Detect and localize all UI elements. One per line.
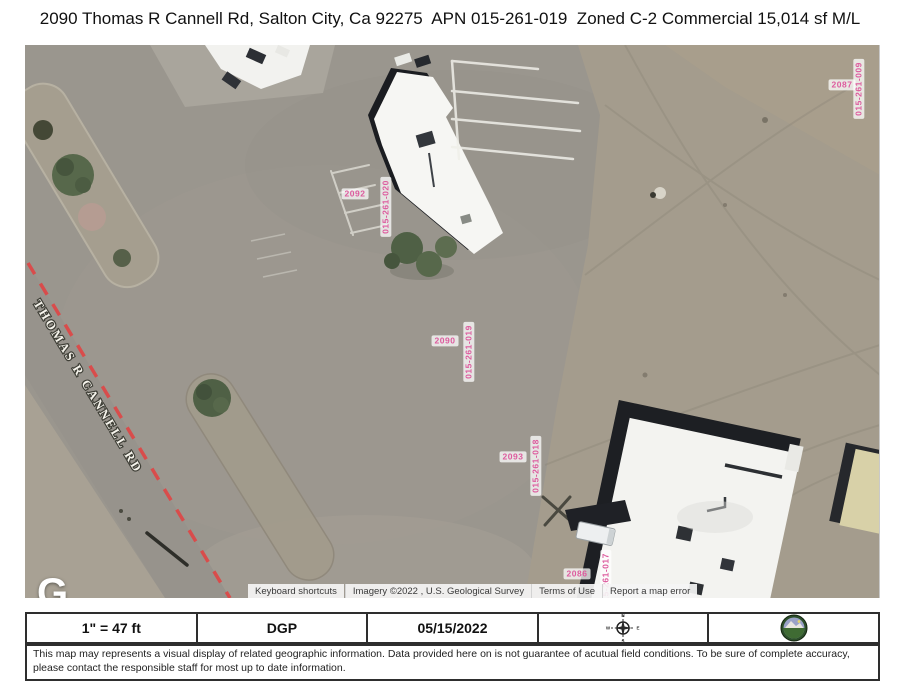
parcel-apn-label: 015-261-020 <box>380 177 391 237</box>
parcel-apn-label: 015-261-019 <box>463 322 474 382</box>
seal-cell <box>707 614 878 642</box>
parcel-number-label: 2090 <box>432 335 459 346</box>
keyboard-shortcuts-link[interactable]: Keyboard shortcuts <box>248 584 344 598</box>
parcel-apn-label: 015-261-018 <box>530 436 541 496</box>
terms-of-use-link[interactable]: Terms of Use <box>531 584 602 598</box>
disclaimer: This map may represents a visual display… <box>25 644 880 681</box>
parcel-number-label: 2093 <box>500 451 527 462</box>
imagery-credit: Imagery ©2022 , U.S. Geological Survey <box>345 584 531 598</box>
map-attribution-bar: Keyboard shortcuts Imagery ©2022 , U.S. … <box>248 584 697 598</box>
map-date: 05/15/2022 <box>417 620 487 636</box>
county-seal-icon <box>780 614 808 642</box>
parcel-number-label: 2092 <box>342 188 369 199</box>
google-logo[interactable]: G <box>37 571 68 598</box>
scale-cell: 1" = 47 ft <box>27 614 196 642</box>
map-info-table: 1" = 47 ft DGP 05/15/2022 N S W E <box>25 612 880 644</box>
parcel-apn-label: 015-261-009 <box>853 59 864 119</box>
dry-bush <box>78 203 106 231</box>
shrub <box>33 120 53 140</box>
map-viewport[interactable]: THOMAS R CANNELL RD 2092 015-261-020 209… <box>25 45 880 598</box>
svg-text:N: N <box>621 613 624 618</box>
svg-text:E: E <box>637 626 640 631</box>
scale-value: 1" = 47 ft <box>82 620 141 636</box>
bush <box>113 249 131 267</box>
preparer-initials: DGP <box>267 620 297 636</box>
property-map-page: 2090 Thomas R Cannell Rd, Salton City, C… <box>0 0 900 695</box>
parcel-number-label: 2086 <box>564 568 591 579</box>
svg-text:S: S <box>622 639 625 644</box>
date-cell: 05/15/2022 <box>366 614 537 642</box>
compass-rose-icon: N S W E <box>605 613 641 643</box>
report-map-error-link[interactable]: Report a map error <box>602 584 697 598</box>
page-title: 2090 Thomas R Cannell Rd, Salton City, C… <box>0 9 900 29</box>
preparer-cell: DGP <box>196 614 367 642</box>
svg-text:W: W <box>606 626 611 631</box>
aerial-imagery: THOMAS R CANNELL RD <box>25 45 880 598</box>
parcel-number-label: 2087 <box>829 79 856 90</box>
compass-cell: N S W E <box>537 614 708 642</box>
